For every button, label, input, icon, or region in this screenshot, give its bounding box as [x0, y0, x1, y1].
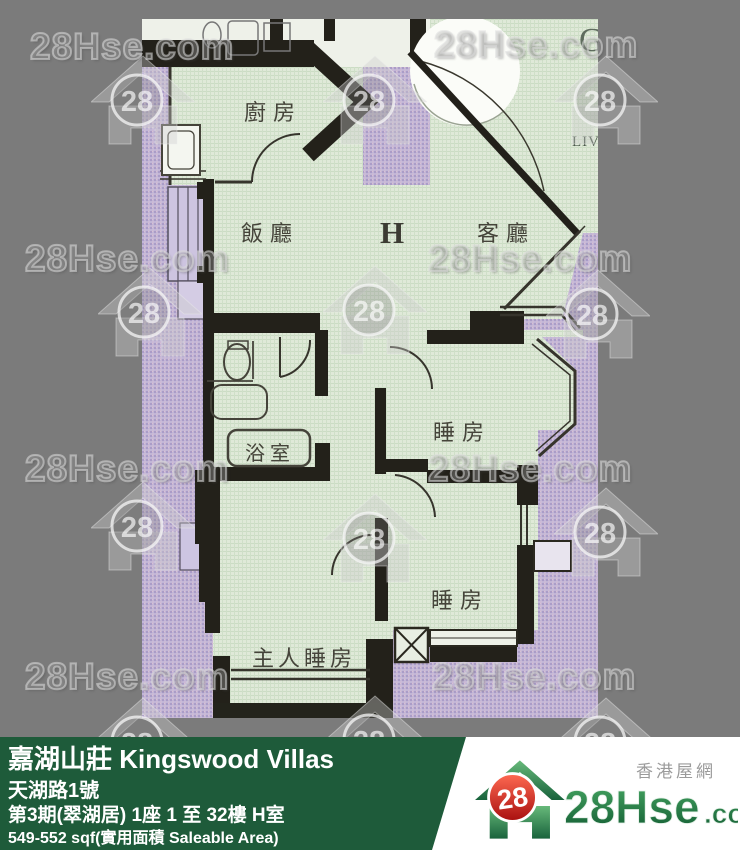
- brand-wordmark-main: 28Hse: [564, 781, 700, 833]
- brand-wordmark: 28Hse .com: [564, 781, 738, 833]
- label-master-bedroom: 主人睡房: [252, 646, 356, 671]
- 28hse-logo: 28 28Hse .com: [458, 751, 738, 847]
- label-corner-letter: G: [579, 22, 598, 59]
- floorplan-drawing: 廚房 飯廳 H 客廳 LIV G 浴室 睡房 睡房 主人睡房: [142, 19, 598, 718]
- saleable-area: 549-552 sqf(實用面積 Saleable Area): [8, 828, 426, 850]
- label-kitchen: 廚房: [244, 100, 302, 125]
- street-address: 天湖路1號: [8, 778, 426, 804]
- label-bedroom-top: 睡房: [433, 420, 491, 445]
- brand-wordmark-suffix: .com: [704, 798, 738, 829]
- label-bedroom-bottom: 睡房: [431, 588, 489, 613]
- floorplan-banner: 廚房 飯廳 H 客廳 LIV G 浴室 睡房 睡房 主人睡房 28 28: [0, 0, 740, 850]
- property-info-panel: 嘉湖山莊 Kingswood Villas 天湖路1號 第3期(翠湖居) 1座 …: [0, 737, 466, 850]
- label-bathroom: 浴室: [245, 442, 295, 465]
- floorplan-photo: 廚房 飯廳 H 客廳 LIV G 浴室 睡房 睡房 主人睡房: [142, 19, 598, 718]
- phase-block-floor-unit: 第3期(翠湖居) 1座 1 至 32樓 H室: [8, 804, 426, 828]
- label-living: 客廳: [477, 221, 535, 246]
- brand-badge: 28: [495, 781, 530, 816]
- brand-panel: 香港屋網 28 28Hse .com: [428, 737, 740, 850]
- label-living-partial: LIV: [572, 134, 598, 150]
- label-dining: 飯廳: [241, 221, 299, 246]
- estate-name: 嘉湖山莊 Kingswood Villas: [8, 740, 426, 778]
- label-unit-h: H: [380, 215, 404, 250]
- house-icon: 28: [472, 759, 568, 840]
